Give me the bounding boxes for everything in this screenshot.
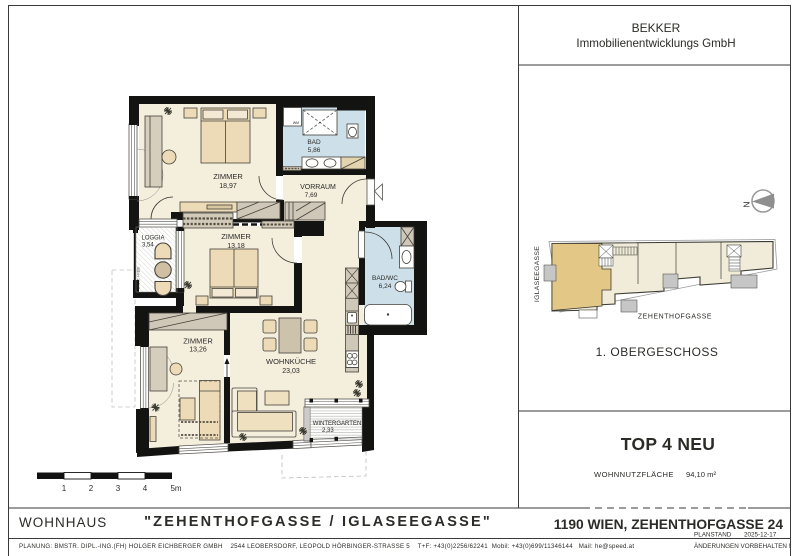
svg-text:1: 1 (62, 484, 67, 493)
svg-text:1190 WIEN, ZEHENTHOFGASSE 24: 1190 WIEN, ZEHENTHOFGASSE 24 (554, 517, 784, 532)
svg-text:BAD: BAD (307, 139, 321, 146)
svg-text:2025-12-17: 2025-12-17 (744, 532, 777, 539)
svg-text:LOGGIA: LOGGIA (142, 236, 165, 242)
svg-text:WOHNNUTZFLÄCHE: WOHNNUTZFLÄCHE (594, 470, 674, 479)
svg-text:7,69: 7,69 (305, 192, 318, 199)
svg-text:WINTERGARTEN: WINTERGARTEN (313, 421, 362, 427)
svg-text:WOHNHAUS: WOHNHAUS (19, 515, 107, 530)
svg-text:ZIMMER: ZIMMER (213, 172, 243, 181)
svg-text:Immobilienentwicklungs GmbH: Immobilienentwicklungs GmbH (576, 37, 735, 50)
svg-text:BEKKER: BEKKER (632, 21, 681, 35)
svg-text:WOHNKÜCHE: WOHNKÜCHE (266, 357, 316, 366)
svg-text:2: 2 (89, 484, 94, 493)
svg-text:6,24: 6,24 (379, 283, 392, 290)
svg-text:94,10 m²: 94,10 m² (686, 470, 716, 479)
svg-text:3: 3 (116, 484, 121, 493)
svg-text:VORRAUM: VORRAUM (300, 184, 336, 191)
svg-text:18,97: 18,97 (219, 183, 237, 190)
svg-text:5,86: 5,86 (308, 147, 321, 154)
svg-text:IGLASEEGASSE: IGLASEEGASSE (534, 246, 541, 302)
svg-text:"ZEHENTHOFGASSE / IGLASEEGASSE: "ZEHENTHOFGASSE / IGLASEEGASSE" (144, 514, 492, 530)
svg-text:13,26: 13,26 (189, 347, 207, 354)
svg-text:ZEHENTHOFGASSE: ZEHENTHOFGASSE (638, 314, 712, 321)
svg-text:PLANSTAND: PLANSTAND (694, 532, 732, 539)
svg-text:13,18: 13,18 (227, 243, 245, 250)
svg-text:BAD/WC: BAD/WC (372, 275, 398, 282)
svg-text:PLANUNG: BMSTR. DIPL.-ING.(FH: PLANUNG: BMSTR. DIPL.-ING.(FH) HOLGER EI… (19, 543, 634, 550)
svg-text:BRÜST. H=100: BRÜST. H=100 (137, 267, 141, 289)
svg-text:2,33: 2,33 (322, 428, 334, 434)
svg-text:4: 4 (143, 484, 148, 493)
svg-text:N: N (742, 201, 752, 207)
svg-text:ZIMMER: ZIMMER (221, 232, 251, 241)
svg-text:1. OBERGESCHOSS: 1. OBERGESCHOSS (596, 345, 719, 359)
svg-text:3,54: 3,54 (142, 243, 154, 249)
svg-text:ZIMMER: ZIMMER (183, 337, 213, 346)
svg-text:WM: WM (293, 121, 299, 125)
svg-text:5m: 5m (170, 484, 181, 493)
svg-text:ÄNDERUNGEN VORBEHALTEN !: ÄNDERUNGEN VORBEHALTEN ! (694, 542, 791, 550)
svg-text:23,03: 23,03 (282, 368, 300, 375)
svg-text:TOP 4 NEU: TOP 4 NEU (621, 434, 715, 454)
